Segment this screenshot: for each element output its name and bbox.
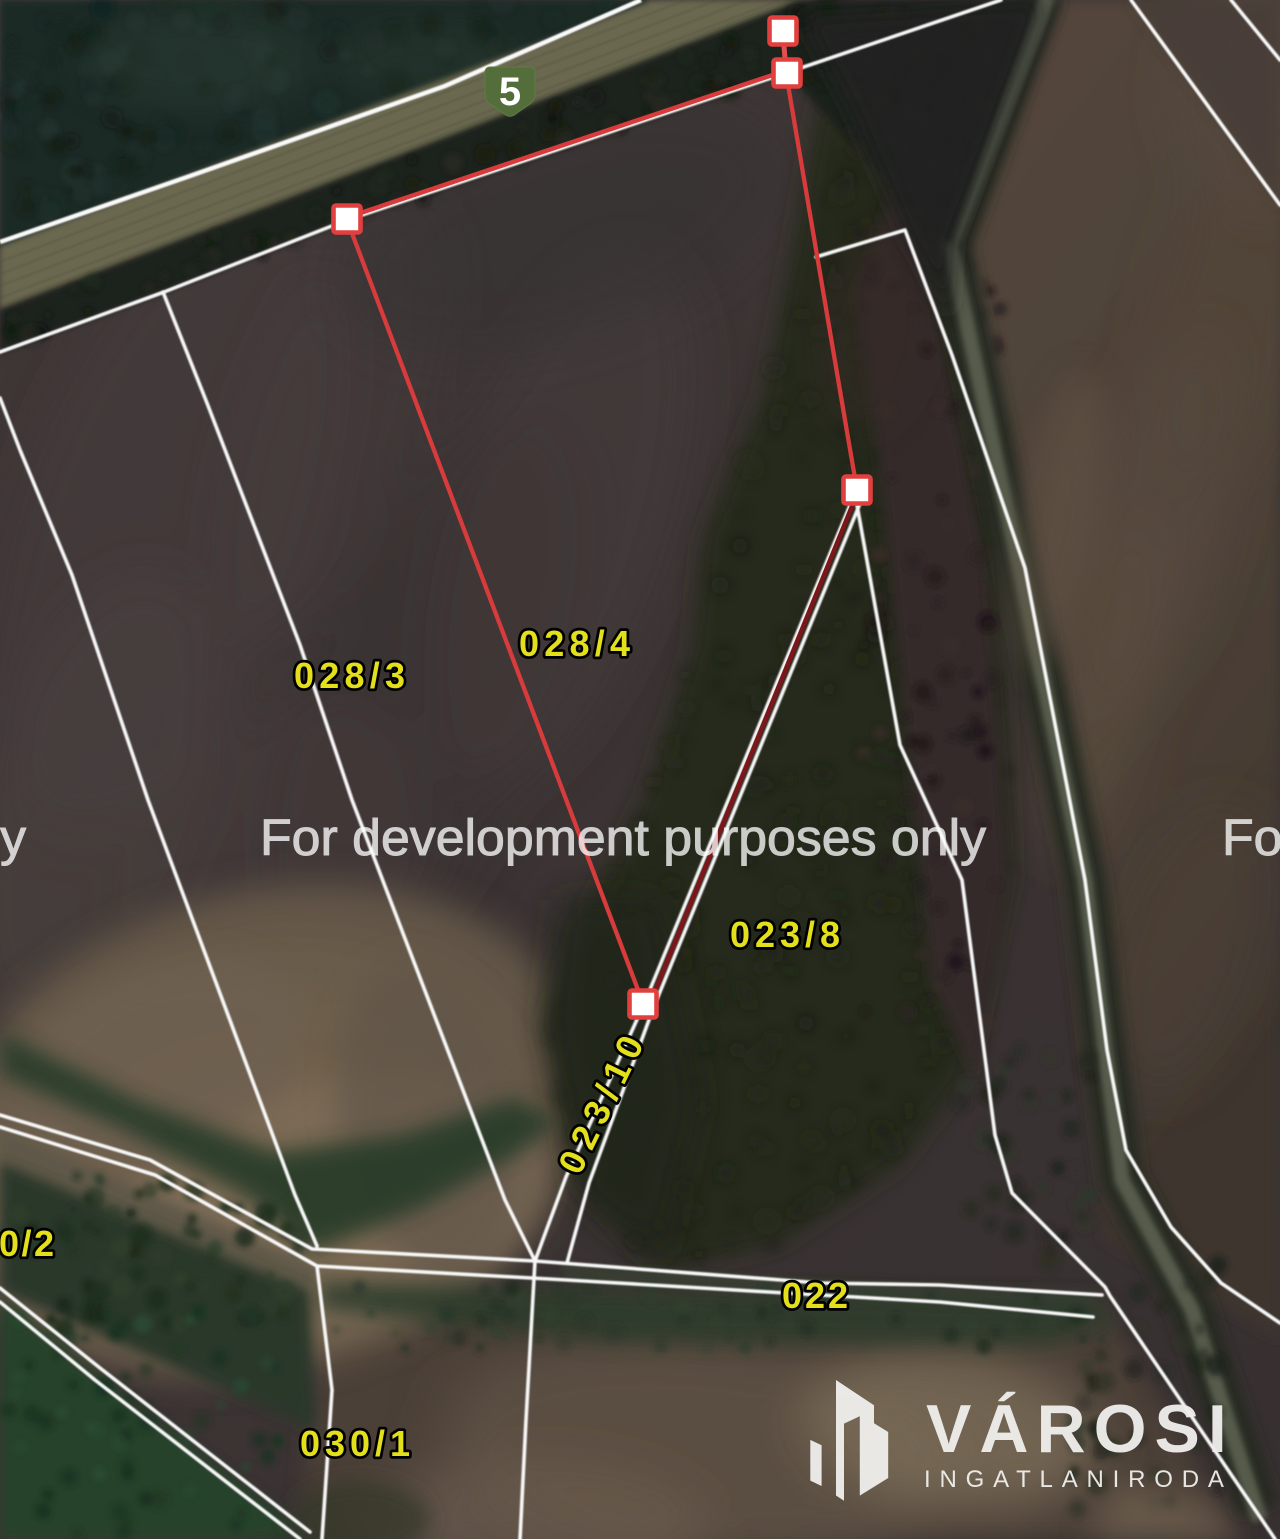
svg-text:028/4: 028/4 xyxy=(519,623,630,664)
svg-text:030/1: 030/1 xyxy=(300,1423,410,1464)
svg-text:023/8: 023/8 xyxy=(730,914,840,955)
svg-text:For development purposes only: For development purposes only xyxy=(1222,809,1280,866)
svg-text:VÁROSI: VÁROSI xyxy=(926,1391,1235,1467)
svg-text:028/3: 028/3 xyxy=(294,655,405,696)
svg-text:5: 5 xyxy=(499,70,521,114)
svg-text:For development purposes only: For development purposes only xyxy=(260,809,987,866)
svg-text:INGATLANIRODA: INGATLANIRODA xyxy=(924,1466,1233,1493)
svg-text:For development purposes only: For development purposes only xyxy=(0,809,27,866)
svg-text:022: 022 xyxy=(782,1275,848,1316)
svg-text:030/2: 030/2 xyxy=(0,1223,54,1264)
